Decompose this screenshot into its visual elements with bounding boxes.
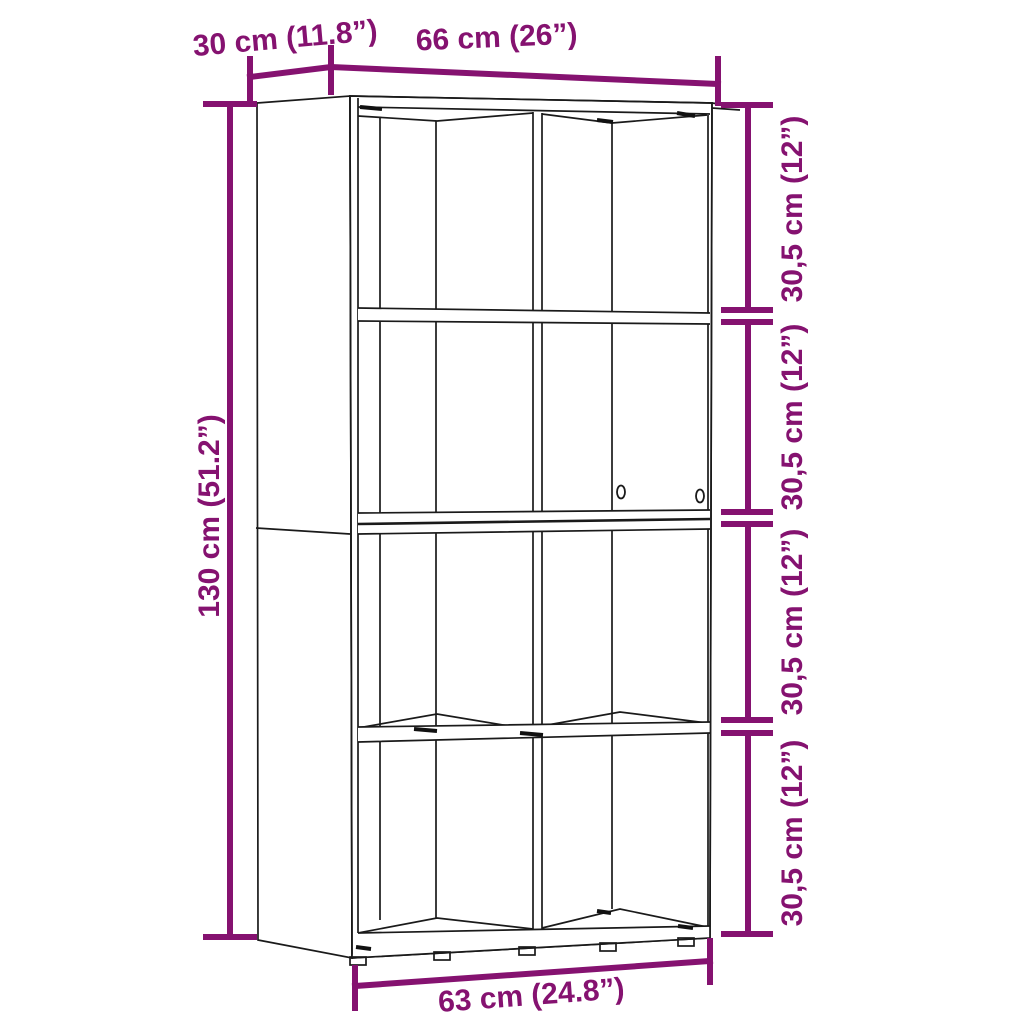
middle-shelf (358, 510, 710, 534)
compartment-height-label-3: 30,5 cm (12”) (776, 529, 809, 716)
compartment-height-label-1: 30,5 cm (12”) (776, 116, 809, 303)
compartment-height-label-2: 30,5 cm (12”) (776, 324, 809, 511)
compartment-height-dimension-lines (724, 105, 770, 934)
diagram-canvas: 30 cm (11.8”) 66 cm (26”) 130 cm (51.2”)… (0, 0, 1024, 1024)
left-side-panel (256, 96, 352, 958)
depth-dimension-label: 30 cm (11.8”) (192, 14, 379, 63)
compartment-height-label-4: 30,5 cm (12”) (776, 740, 809, 927)
cabinet-line-drawing (256, 96, 740, 965)
width-dimension-label: 66 cm (26”) (415, 17, 578, 57)
product-dimension-diagram: 30 cm (11.8”) 66 cm (26”) 130 cm (51.2”)… (0, 0, 1024, 1024)
height-dimension-label: 130 cm (51.2”) (193, 414, 226, 617)
